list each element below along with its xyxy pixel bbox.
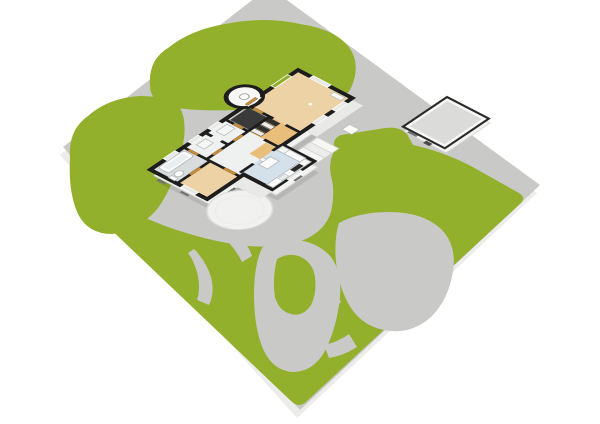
floorplan-3d-canvas — [0, 0, 600, 424]
terrain-layer — [60, 0, 540, 418]
lawn-island[interactable] — [274, 255, 316, 315]
